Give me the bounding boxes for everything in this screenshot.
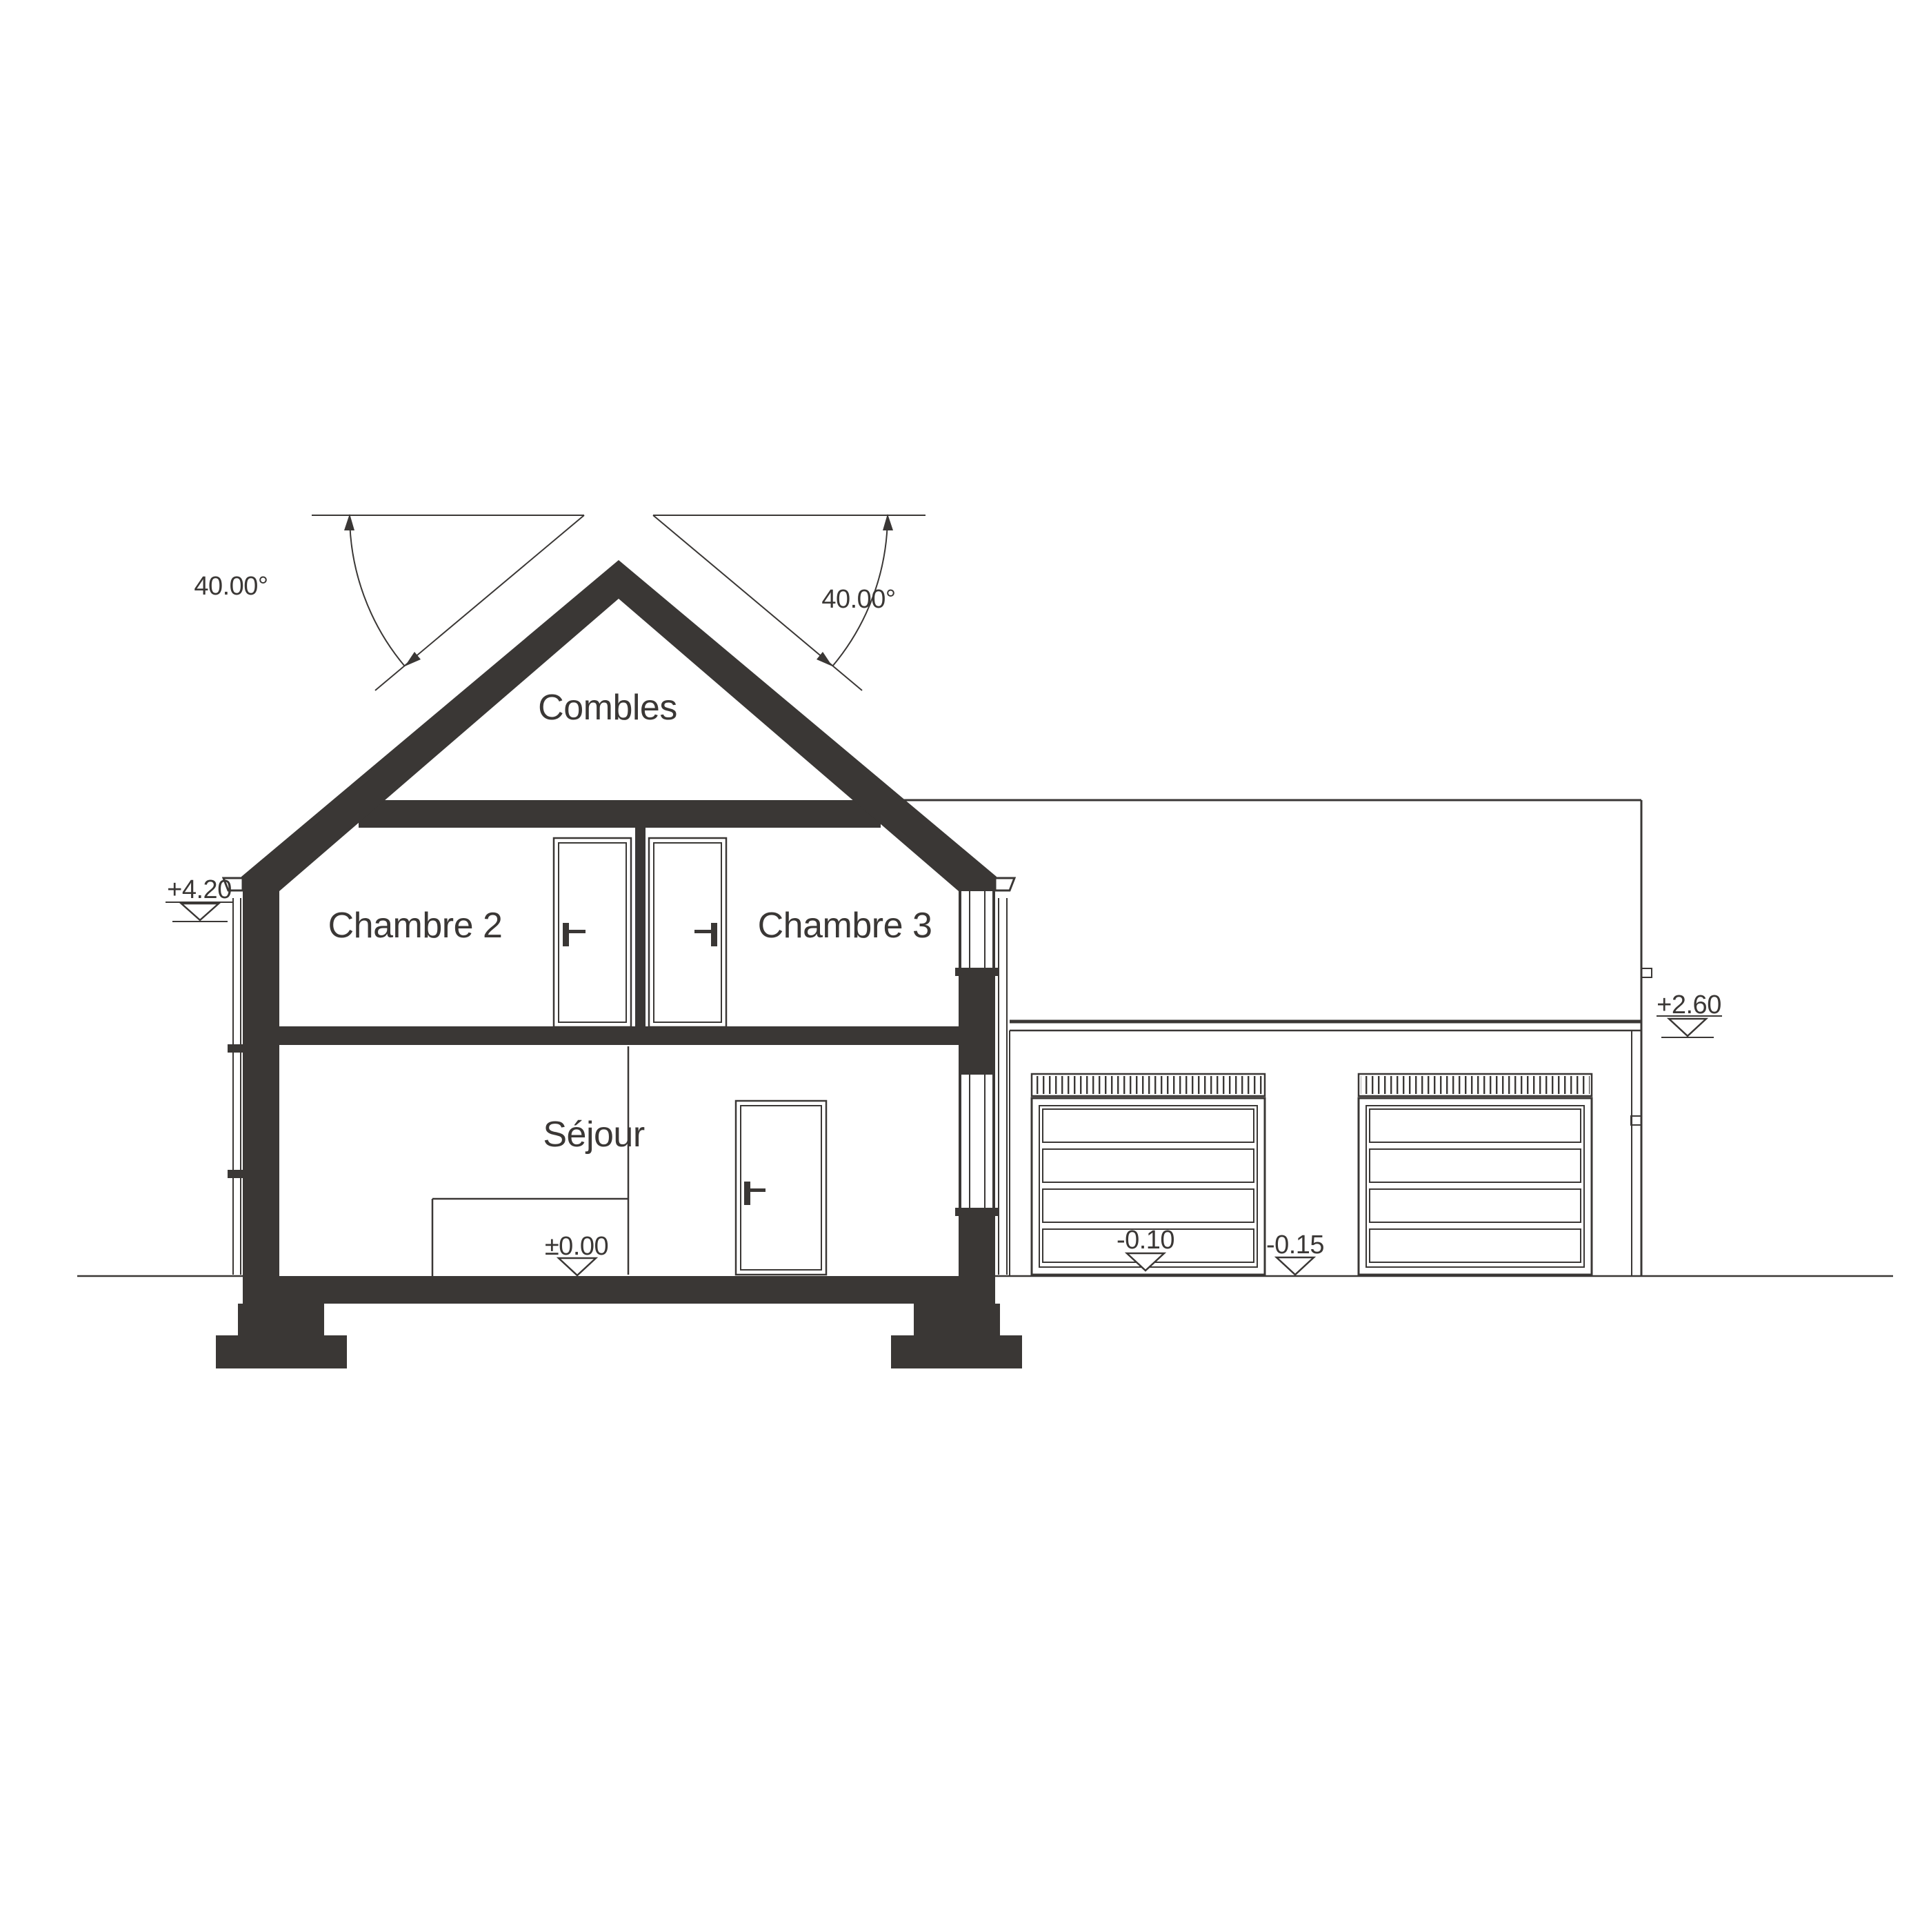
level-marker-eaves-left: +4.20: [166, 875, 232, 922]
level-label: ±0.00: [545, 1232, 608, 1261]
level-triangle-icon: [559, 1258, 596, 1275]
room-label-living: Séjour: [543, 1115, 644, 1155]
level-label: +2.60: [1657, 990, 1721, 1019]
level-marker-garage-apron: -0.15: [1266, 1231, 1324, 1275]
room-label-attic: Combles: [538, 688, 677, 728]
window-right-upper: [961, 891, 992, 968]
garage-elevation: [890, 800, 1652, 1276]
roof-angle-dimension-right: 40.00°: [653, 514, 926, 690]
arrowhead-icon: [344, 514, 354, 530]
room-label-bedroom3: Chambre 3: [758, 906, 932, 946]
vent-strip-icon: [1361, 1076, 1590, 1094]
level-triangle-icon: [1277, 1257, 1314, 1275]
roof-angle-right-label: 40.00°: [821, 585, 895, 614]
room-label-bedroom2: Chambre 2: [328, 906, 503, 946]
garage-door-2: [1359, 1074, 1592, 1275]
level-marker-garage-door: -0.10: [1117, 1226, 1174, 1271]
house-section: Combles Chambre 2 Chambre 3 Séjour: [216, 560, 1022, 1368]
level-marker-ground-floor: ±0.00: [545, 1232, 608, 1275]
wall-left: [243, 888, 279, 1276]
level-triangle-icon: [1669, 1019, 1706, 1036]
foundation-pad-right: [891, 1335, 1022, 1368]
window-sill-left-upper: [228, 1044, 244, 1053]
ground-slab: [243, 1276, 995, 1304]
foundation-stem-left: [238, 1304, 324, 1335]
window-sill-left-lower: [228, 1170, 244, 1178]
attic-floor-beam: [359, 800, 881, 828]
foundation-stem-right: [914, 1304, 1000, 1335]
level-label: -0.15: [1266, 1231, 1324, 1259]
window-sill-right-upper: [955, 968, 999, 976]
level-label: -0.10: [1117, 1226, 1174, 1255]
window-right-lower: [961, 1075, 992, 1209]
gutter-bracket-lower: [1631, 1116, 1641, 1125]
door-handle-icon: [744, 1182, 750, 1205]
arrowhead-icon: [883, 514, 893, 530]
upper-floor-slab: [279, 1026, 959, 1045]
door-handle-icon: [563, 923, 569, 946]
level-label: +4.20: [167, 875, 232, 904]
level-triangle-icon: [181, 904, 219, 920]
window-sill-right-lower: [955, 1208, 999, 1216]
roof-angle-left-label: 40.00°: [194, 572, 268, 601]
foundation-pad-left: [216, 1335, 347, 1368]
gutter-bracket-upper: [1641, 968, 1652, 977]
door-living: [736, 1101, 826, 1275]
door-bedroom3: [649, 838, 726, 1027]
house-section-svg: Combles Chambre 2 Chambre 3 Séjour 40.00…: [0, 0, 1931, 1932]
partition-upper-floor: [635, 826, 646, 1029]
section-drawing: Combles Chambre 2 Chambre 3 Séjour 40.00…: [0, 0, 1931, 1932]
door-handle-icon: [711, 923, 717, 946]
door-bedroom2: [554, 838, 631, 1027]
gutter-right-icon: [995, 878, 1014, 890]
vent-strip-icon: [1034, 1076, 1263, 1094]
level-marker-garage-eaves: +2.60: [1657, 990, 1722, 1037]
